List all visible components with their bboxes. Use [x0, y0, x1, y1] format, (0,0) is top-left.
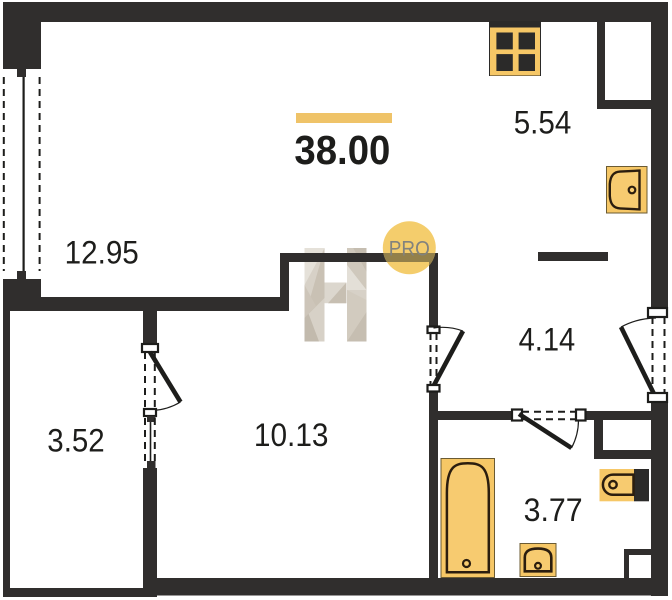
svg-text:10.13: 10.13 [254, 417, 329, 453]
svg-text:12.95: 12.95 [65, 234, 139, 270]
svg-text:PRO: PRO [389, 237, 430, 261]
svg-text:3.52: 3.52 [47, 422, 104, 458]
svg-text:5.54: 5.54 [514, 105, 572, 141]
svg-text:38.00: 38.00 [294, 127, 390, 173]
svg-text:4.14: 4.14 [519, 322, 576, 358]
svg-text:3.77: 3.77 [524, 492, 583, 528]
